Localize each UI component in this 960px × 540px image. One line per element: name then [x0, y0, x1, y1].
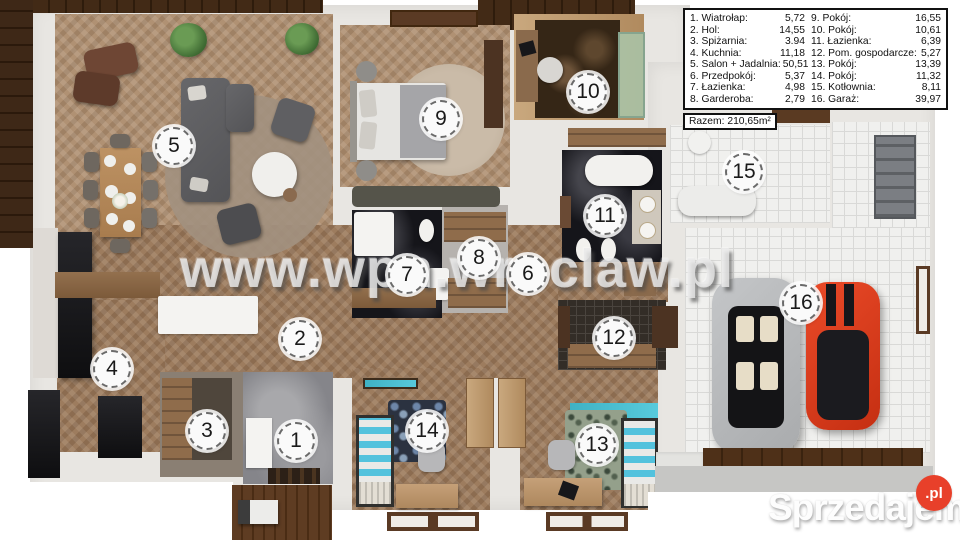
nightstand-1 — [356, 61, 377, 82]
room-marker-6: 6 — [509, 255, 547, 293]
car-silver-seat-1 — [736, 316, 754, 342]
dining-chair-l3 — [84, 208, 99, 228]
garage-door — [703, 448, 923, 466]
floorplan-image: www.wpn.wroclaw.pl 1. Wiatrołap:5,722. H… — [0, 0, 960, 540]
legend-room-area: 4,98 — [785, 82, 805, 94]
legend-room-area: 13,39 — [915, 59, 941, 71]
legend-room-area: 14,55 — [779, 25, 805, 37]
entry-threshold — [268, 468, 320, 484]
garage-shelving — [874, 135, 916, 219]
sofa-pillow — [187, 85, 207, 101]
plate-5 — [106, 213, 118, 225]
legend-room-area: 8,11 — [922, 82, 941, 94]
shelf-room14-teal — [363, 378, 418, 389]
plate-1 — [104, 155, 116, 167]
brand-tld: .pl — [925, 485, 943, 502]
window-room9 — [390, 10, 478, 27]
car-silver-seat-3 — [736, 362, 754, 390]
legend-room-label: 10. Pokój: — [811, 25, 857, 37]
legend-room-area: 50,51 — [783, 59, 809, 71]
legend-row: 13. Pokój:13,39 — [811, 59, 941, 71]
kitchen-tall-units — [58, 232, 92, 378]
legend-column-right: 9. Pokój:16,5510. Pokój:10,6111. Łazienk… — [811, 13, 941, 105]
armchair-leather-2 — [72, 70, 121, 107]
room-marker-13: 13 — [578, 426, 616, 464]
legend-row: 4. Kuchnia:11,18 — [690, 48, 805, 60]
kitchen-sideboard — [55, 272, 160, 298]
legend-room-area: 11,18 — [780, 48, 805, 60]
legend-room-label: 2. Hol: — [690, 25, 720, 37]
legend-row: 2. Hol:14,55 — [690, 25, 805, 37]
room-marker-11: 11 — [586, 197, 624, 235]
cabinet-bath11-top — [568, 128, 666, 147]
deck-top — [33, 0, 323, 13]
legend-row: 15. Kotłownia:8,11 — [811, 82, 941, 94]
plate-6 — [123, 220, 135, 232]
brand-logo: Sprzedajemy .pl — [768, 487, 960, 529]
legend-room-label: 5. Salon + Jadalnia: — [690, 59, 781, 71]
legend-room-label: 8. Garderoba: — [690, 94, 754, 106]
legend-box: 1. Wiatrołap:5,722. Hol:14,553. Spiżarni… — [683, 8, 948, 110]
cabinet-room12-left — [558, 306, 570, 348]
room-marker-12: 12 — [595, 319, 633, 357]
plant-2 — [285, 23, 319, 55]
porch-bench-end — [238, 500, 250, 524]
legend-row: 8. Garderoba:2,79 — [690, 94, 805, 106]
wardrobe-14-13-a — [466, 378, 494, 448]
car-silver-seat-4 — [760, 362, 778, 390]
legend-room-area: 10,61 — [915, 25, 941, 37]
legend-row: 6. Przedpokój:5,37 — [690, 71, 805, 83]
car-red-stripe-1 — [826, 284, 836, 326]
sink-11-2 — [639, 222, 656, 239]
dining-chair-r1 — [142, 152, 157, 172]
legend-row: 9. Pokój:16,55 — [811, 13, 941, 25]
dresser-room9 — [484, 40, 503, 128]
legend-row: 14. Pokój:11,32 — [811, 71, 941, 83]
sink-11-1 — [639, 196, 656, 213]
legend-room-label: 12. Pom. gospodarcze: — [811, 48, 917, 60]
wardrobe-14-13-b — [498, 378, 526, 448]
room-marker-9: 9 — [422, 100, 460, 138]
bed9-pillow-2 — [359, 121, 378, 150]
legend-room-label: 14. Pokój: — [811, 71, 857, 83]
legend-row: 10. Pokój:10,61 — [811, 25, 941, 37]
legend-column-left: 1. Wiatrołap:5,722. Hol:14,553. Spiżarni… — [690, 13, 805, 105]
legend-room-area: 39,97 — [915, 94, 941, 106]
window-room14 — [387, 512, 479, 531]
car-silver-seat-2 — [760, 316, 778, 342]
legend-row: 7. Łazienka:4,98 — [690, 82, 805, 94]
legend-room-label: 15. Kotłownia: — [811, 82, 876, 94]
dining-chair-bottom — [110, 239, 130, 253]
beam-2 — [772, 110, 830, 123]
legend-row: 5. Salon + Jadalnia:50,51 — [690, 59, 805, 71]
bed14-pillow — [359, 482, 391, 504]
legend-row: 12. Pom. gospodarcze:5,27 — [811, 48, 941, 60]
room-marker-15: 15 — [725, 153, 763, 191]
legend-room-area: 5,27 — [921, 48, 941, 60]
legend-room-label: 13. Pokój: — [811, 59, 857, 71]
plant-1 — [170, 23, 207, 57]
brand-tld-badge: .pl — [916, 475, 952, 511]
shower-room10 — [618, 32, 645, 118]
deck-left — [0, 0, 33, 248]
room-marker-4: 4 — [93, 350, 131, 388]
room-marker-16: 16 — [782, 284, 820, 322]
exterior-mask-bl — [0, 482, 233, 540]
window-room13 — [546, 512, 628, 531]
bed9-pillow-1 — [359, 89, 378, 118]
room-marker-5: 5 — [155, 127, 193, 165]
room-marker-3: 3 — [188, 412, 226, 450]
room-marker-2: 2 — [281, 320, 319, 358]
legend-room-label: 4. Kuchnia: — [690, 48, 742, 60]
legend-row: 16. Garaż:39,97 — [811, 94, 941, 106]
washer — [688, 131, 711, 154]
legend-room-label: 16. Garaż: — [811, 94, 859, 106]
legend-row: 3. Spiżarnia:3.94 — [690, 36, 805, 48]
room-marker-14: 14 — [408, 412, 446, 450]
dining-flowers — [112, 193, 128, 209]
room-marker-8: 8 — [460, 239, 498, 277]
legend-room-label: 11. Łazienka: — [811, 36, 872, 48]
bench-room9 — [352, 186, 500, 207]
dining-chair-l2 — [83, 180, 98, 200]
legend-room-label: 9. Pokój: — [811, 13, 851, 25]
side-table — [283, 188, 297, 202]
bed9-headboard — [350, 81, 357, 162]
window-garage-right — [916, 266, 930, 334]
bathtub-11 — [585, 155, 653, 186]
dining-chair-top — [110, 134, 130, 148]
nightstand-2 — [356, 160, 377, 181]
legend-room-area: 3.94 — [785, 36, 805, 48]
kitchen-white-column — [33, 228, 58, 378]
room-marker-7: 7 — [388, 256, 426, 294]
kitchen-black-island — [98, 396, 142, 458]
legend-row: 1. Wiatrołap:5,72 — [690, 13, 805, 25]
legend-room-label: 1. Wiatrołap: — [690, 13, 748, 25]
dining-chair-r2 — [143, 180, 158, 200]
pantry-shelves — [162, 378, 192, 460]
kitchen-lower-units — [28, 390, 60, 478]
plate-2 — [124, 163, 136, 175]
legend-room-label: 6. Przedpokój: — [690, 71, 756, 83]
wardrobe-wiatrolap — [246, 418, 272, 468]
chair-room10 — [537, 57, 563, 83]
kitchen-island — [158, 296, 258, 334]
dining-chair-l1 — [84, 152, 99, 172]
cabinet-bath11-left — [560, 196, 571, 228]
legend-room-label: 7. Łazienka: — [690, 82, 746, 94]
legend-room-area: 6,39 — [921, 36, 941, 48]
room-marker-1: 1 — [277, 422, 315, 460]
legend-room-area: 5,37 — [785, 71, 805, 83]
room-marker-10: 10 — [569, 73, 607, 111]
dining-chair-r3 — [142, 208, 157, 228]
desk-room14 — [396, 484, 458, 508]
car-red-roof — [817, 330, 869, 420]
legend-room-label: 3. Spiżarnia: — [690, 36, 747, 48]
chair-room13 — [548, 440, 575, 470]
cabinet-room12-right — [652, 306, 678, 348]
legend-room-area: 5,72 — [785, 13, 805, 25]
legend-room-area: 2,79 — [785, 94, 805, 106]
sofa-chaise — [226, 84, 254, 132]
legend-room-area: 16,55 — [915, 13, 941, 25]
legend-row: 11. Łazienka:6,39 — [811, 36, 941, 48]
legend-total: Razem: 210,65m² — [683, 113, 777, 130]
legend-room-area: 11,32 — [916, 71, 941, 83]
car-red-stripe-2 — [844, 284, 854, 326]
